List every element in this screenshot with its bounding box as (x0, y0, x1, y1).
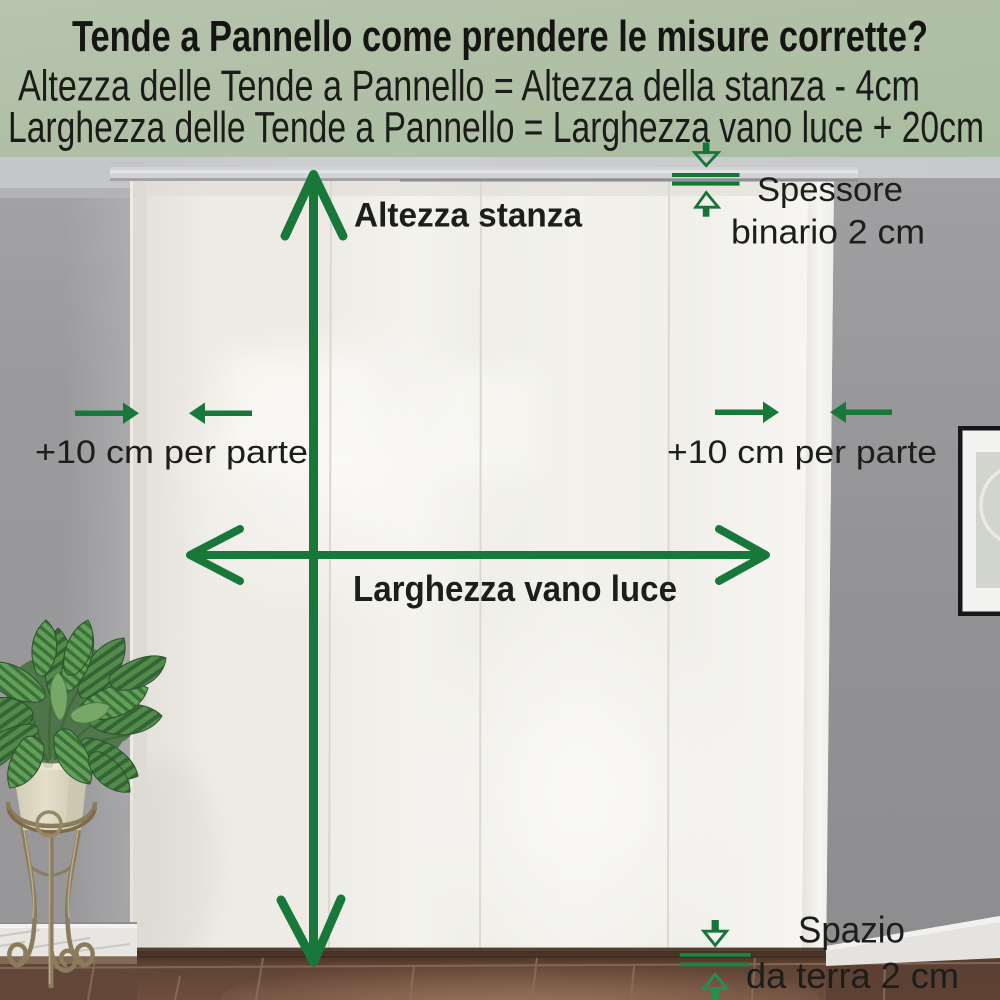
svg-text:Spazio: Spazio (798, 910, 905, 951)
svg-text:da terra 2 cm: da terra 2 cm (746, 955, 959, 996)
svg-text:binario 2 cm: binario 2 cm (731, 214, 925, 252)
svg-text:Spessore: Spessore (757, 171, 903, 209)
svg-text:Altezza stanza: Altezza stanza (354, 197, 583, 235)
svg-text:+10 cm per parte: +10 cm per parte (35, 434, 308, 470)
svg-text:Tende a Pannello come prendere: Tende a Pannello come prendere le misure… (72, 12, 928, 61)
svg-text:+10 cm per parte: +10 cm per parte (667, 434, 937, 470)
svg-text:Larghezza vano luce: Larghezza vano luce (353, 568, 677, 609)
svg-text:Larghezza delle Tende a Pannel: Larghezza delle Tende a Pannello = Largh… (8, 103, 984, 152)
